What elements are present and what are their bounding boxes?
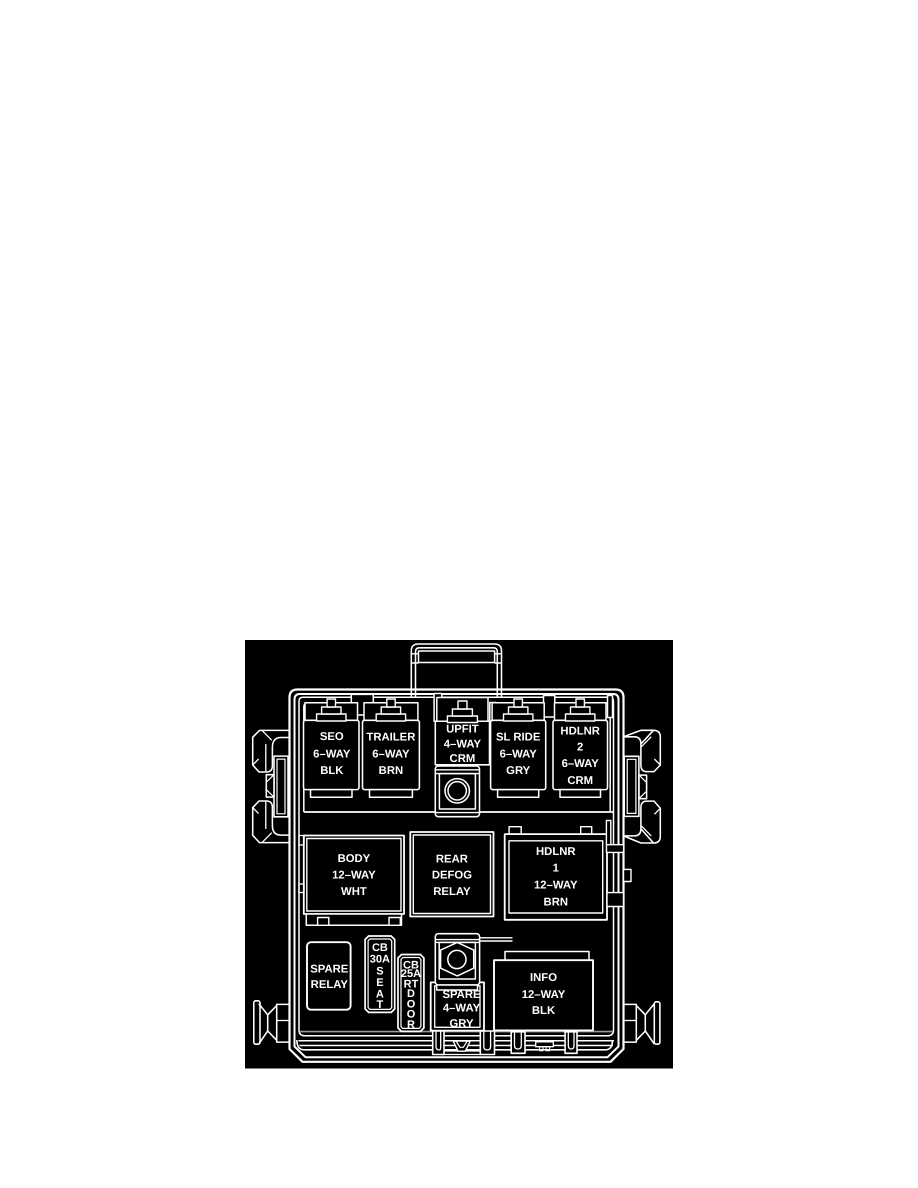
svg-text:12–WAY: 12–WAY (522, 989, 566, 1001)
svg-text:SL RIDE: SL RIDE (496, 731, 541, 743)
svg-text:1: 1 (553, 863, 559, 875)
svg-text:12–WAY: 12–WAY (332, 869, 376, 881)
svg-text:BODY: BODY (338, 853, 371, 865)
svg-text:4–WAY: 4–WAY (443, 1002, 481, 1014)
svg-text:REAR: REAR (436, 854, 468, 866)
svg-text:BRN: BRN (544, 897, 568, 909)
svg-text:CRM: CRM (450, 753, 476, 765)
svg-text:4–WAY: 4–WAY (444, 738, 482, 750)
svg-text:S: S (376, 966, 383, 978)
svg-text:CB: CB (372, 942, 388, 954)
svg-text:INFO: INFO (530, 972, 557, 984)
svg-text:WHT: WHT (341, 886, 367, 898)
svg-text:6–WAY: 6–WAY (313, 748, 351, 760)
svg-text:E: E (376, 977, 383, 989)
svg-text:UPFIT: UPFIT (446, 723, 479, 735)
svg-text:30A: 30A (370, 954, 390, 966)
svg-text:HDLNR: HDLNR (536, 846, 576, 858)
svg-text:T: T (377, 999, 384, 1011)
svg-text:2: 2 (577, 742, 583, 754)
svg-text:HDLNR: HDLNR (560, 725, 600, 737)
svg-text:BLK: BLK (532, 1005, 556, 1017)
svg-text:6–WAY: 6–WAY (562, 758, 600, 770)
svg-text:SPARE: SPARE (310, 963, 349, 975)
svg-text:RELAY: RELAY (311, 979, 349, 991)
svg-text:GRY: GRY (506, 765, 531, 777)
svg-text:BLK: BLK (320, 765, 344, 777)
svg-text:6–WAY: 6–WAY (500, 748, 538, 760)
svg-text:SPARE: SPARE (442, 989, 481, 1001)
svg-text:CRM: CRM (567, 775, 593, 787)
svg-text:TRAILER: TRAILER (366, 731, 415, 743)
svg-text:6–WAY: 6–WAY (372, 748, 410, 760)
svg-text:R: R (407, 1019, 415, 1031)
svg-text:BRN: BRN (379, 765, 403, 777)
svg-text:GRY: GRY (449, 1018, 474, 1030)
svg-text:SEO: SEO (320, 731, 344, 743)
svg-text:12–WAY: 12–WAY (534, 879, 578, 891)
svg-text:RELAY: RELAY (433, 886, 471, 898)
svg-text:DEFOG: DEFOG (432, 869, 472, 881)
